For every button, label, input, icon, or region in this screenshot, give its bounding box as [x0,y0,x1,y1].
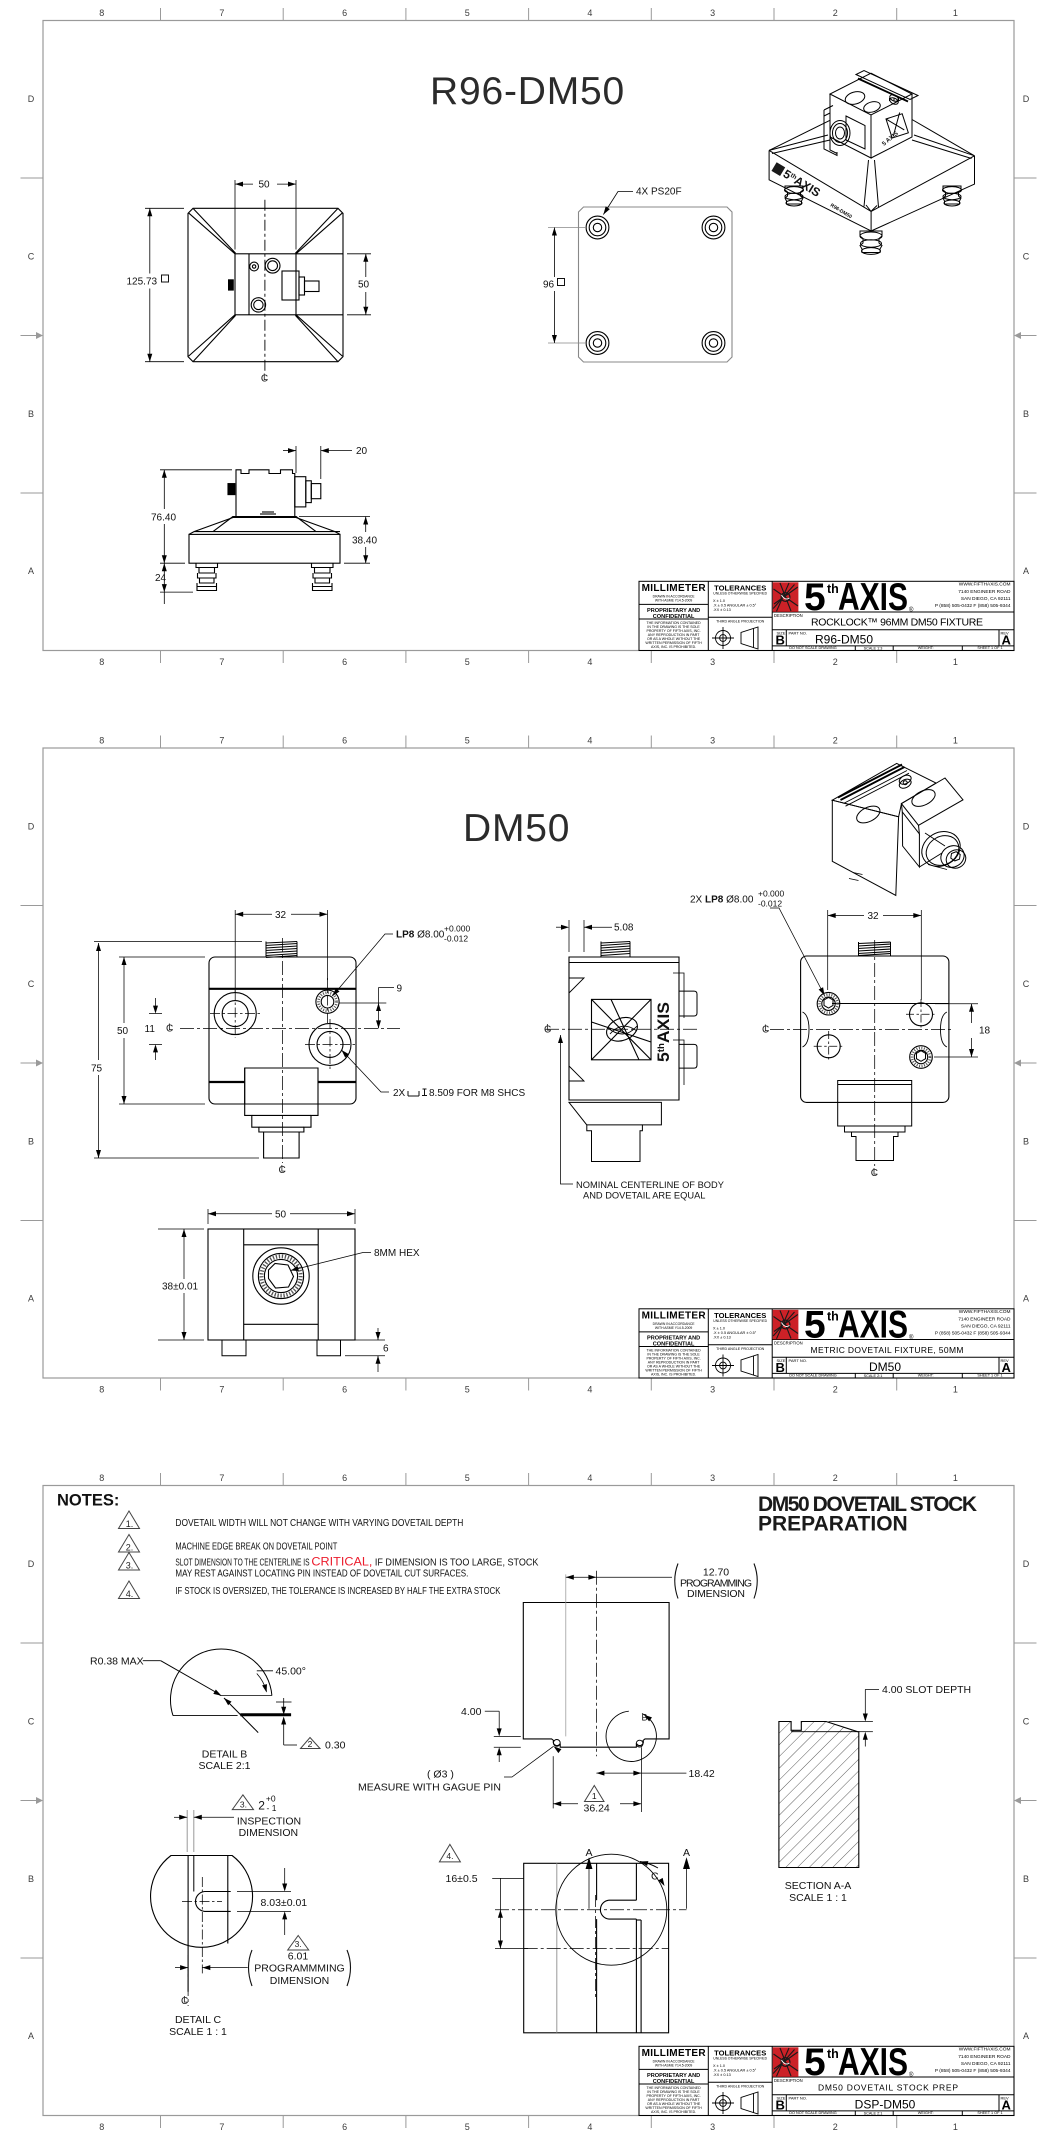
svg-text:4.: 4. [446,1851,453,1861]
svg-text:8MM HEX: 8MM HEX [374,1248,420,1259]
svg-text:SCALE 1 : 1: SCALE 1 : 1 [169,2026,227,2038]
svg-text:45.00°: 45.00° [276,1666,306,1678]
svg-text:50: 50 [358,280,370,291]
svg-text:+0: +0 [266,1794,276,1804]
svg-text:6.01: 6.01 [288,1951,309,1963]
svg-text:50: 50 [259,180,271,191]
svg-text:SCALE 2:1: SCALE 2:1 [199,1760,251,1772]
svg-text:1: 1 [592,1791,597,1801]
svg-text:8.509 FOR M8 SHCS: 8.509 FOR M8 SHCS [429,1088,525,1099]
svg-text:DOVETAIL WIDTH WILL NOT CHANGE: DOVETAIL WIDTH WILL NOT CHANGE WITH VARY… [175,1518,463,1529]
svg-text:11: 11 [145,1024,156,1035]
svg-text:MACHINE EDGE BREAK ON DOVETAIL: MACHINE EDGE BREAK ON DOVETAIL POINT [175,1542,337,1553]
svg-text:- 1: - 1 [267,1803,277,1813]
svg-text:NOMINAL CENTERLINE OF BODY: NOMINAL CENTERLINE OF BODY [576,1180,724,1190]
svg-text:8.03±0.01: 8.03±0.01 [261,1897,308,1909]
svg-text:R0.38 MAX: R0.38 MAX [90,1656,144,1668]
svg-text:32: 32 [275,910,287,921]
svg-text:3.: 3. [295,1939,302,1949]
svg-text:50: 50 [275,1209,287,1220]
svg-text:INSPECTION: INSPECTION [237,1816,301,1828]
svg-text:SCALE 1 : 1: SCALE 1 : 1 [789,1892,847,1904]
svg-text:4.: 4. [126,1589,134,1599]
svg-text:76.40: 76.40 [151,513,176,524]
svg-text:DETAIL B: DETAIL B [202,1749,248,1761]
svg-text:5thAXIS: 5thAXIS [655,1002,673,1062]
svg-text:+0.000: +0.000 [758,889,785,899]
svg-text:DM50: DM50 [869,1360,901,1374]
svg-text:38±0.01: 38±0.01 [162,1281,199,1292]
svg-text:METRIC DOVETAIL FIXTURE, 50MM: METRIC DOVETAIL FIXTURE, 50MM [811,1345,964,1355]
svg-text:NOTES:: NOTES: [57,1492,119,1510]
svg-text:36.24: 36.24 [584,1803,610,1815]
svg-text:SCALE 1:3: SCALE 1:3 [864,647,883,651]
svg-text:DIMENSION: DIMENSION [239,1827,299,1839]
svg-text:24: 24 [155,573,167,584]
svg-text:IF STOCK IS OVERSIZED, THE TOL: IF STOCK IS OVERSIZED, THE TOLERANCE IS … [175,1586,500,1597]
svg-text:SCALE 2:1: SCALE 2:1 [864,2112,883,2116]
svg-text:PROGRAMMMING: PROGRAMMMING [254,1962,344,1974]
svg-text:96: 96 [543,280,555,291]
svg-text:4X PS20F: 4X PS20F [636,187,682,198]
svg-text:0.30: 0.30 [325,1740,346,1752]
svg-text:SECTION A-A: SECTION A-A [785,1880,852,1892]
svg-text:LP8 Ø8.00: LP8 Ø8.00 [396,930,445,941]
svg-text:2X LP8 Ø8.00: 2X LP8 Ø8.00 [690,895,754,906]
svg-text:A: A [585,1847,592,1859]
svg-text:38.40: 38.40 [352,535,377,546]
svg-text:18.42: 18.42 [689,1768,715,1780]
svg-text:R96-DM50: R96-DM50 [430,70,625,113]
svg-text:-0.012: -0.012 [758,899,782,909]
svg-text:20: 20 [356,446,368,457]
svg-text:+0.000: +0.000 [444,924,471,934]
svg-text:MEASURE WITH GAGUE PIN: MEASURE WITH GAGUE PIN [358,1782,501,1794]
svg-text:3.: 3. [240,1800,247,1810]
svg-text:( Ø3 ): ( Ø3 ) [427,1769,454,1781]
svg-text:18: 18 [979,1026,991,1037]
svg-text:32: 32 [868,911,880,922]
svg-text:16±0.5: 16±0.5 [446,1873,478,1885]
svg-text:B: B [642,1713,648,1723]
svg-text:ROCKLOCK™ 96MM DM50 FIXTURE: ROCKLOCK™ 96MM DM50 FIXTURE [811,617,983,629]
svg-text:DIMENSION: DIMENSION [687,1588,745,1600]
svg-text:9: 9 [397,984,403,995]
svg-text:3.: 3. [126,1561,134,1571]
svg-text:DIMENSION: DIMENSION [270,1975,330,1987]
svg-text:125.73: 125.73 [127,277,158,288]
svg-text:6: 6 [383,1344,389,1355]
svg-text:SLOT DIMENSION TO THE CENTERLI: SLOT DIMENSION TO THE CENTERLINE IS CRIT… [175,1555,538,1569]
svg-text:DM50: DM50 [463,807,570,850]
svg-text:MAY REST AGAINST LOCATING PIN: MAY REST AGAINST LOCATING PIN INSTEAD OF… [175,1569,468,1580]
svg-text:SCALE 2:1: SCALE 2:1 [864,1374,883,1378]
svg-text:4.00: 4.00 [461,1706,482,1718]
svg-text:DSP-DM50: DSP-DM50 [855,2097,916,2111]
svg-text:5.08: 5.08 [614,923,634,934]
svg-text:DM50 DOVETAIL STOCK PREP: DM50 DOVETAIL STOCK PREP [818,2083,958,2093]
svg-text:C: C [651,1871,659,1883]
svg-text:2: 2 [308,1739,313,1749]
svg-text:1.: 1. [126,1519,134,1529]
svg-text:2: 2 [258,1799,265,1813]
svg-text:A: A [683,1847,690,1859]
svg-text:DETAIL C: DETAIL C [175,2014,222,2026]
svg-text:2.: 2. [126,1543,134,1553]
svg-text:75: 75 [91,1064,103,1075]
svg-text:R96-DM50: R96-DM50 [815,632,873,646]
svg-text:AND DOVETAIL ARE EQUAL: AND DOVETAIL ARE EQUAL [583,1191,705,1201]
svg-text:50: 50 [117,1026,129,1037]
svg-text:2X: 2X [393,1088,406,1099]
svg-text:PREPARATION: PREPARATION [758,1513,908,1536]
svg-text:-0.012: -0.012 [444,934,468,944]
svg-text:4.00 SLOT DEPTH: 4.00 SLOT DEPTH [882,1684,971,1696]
